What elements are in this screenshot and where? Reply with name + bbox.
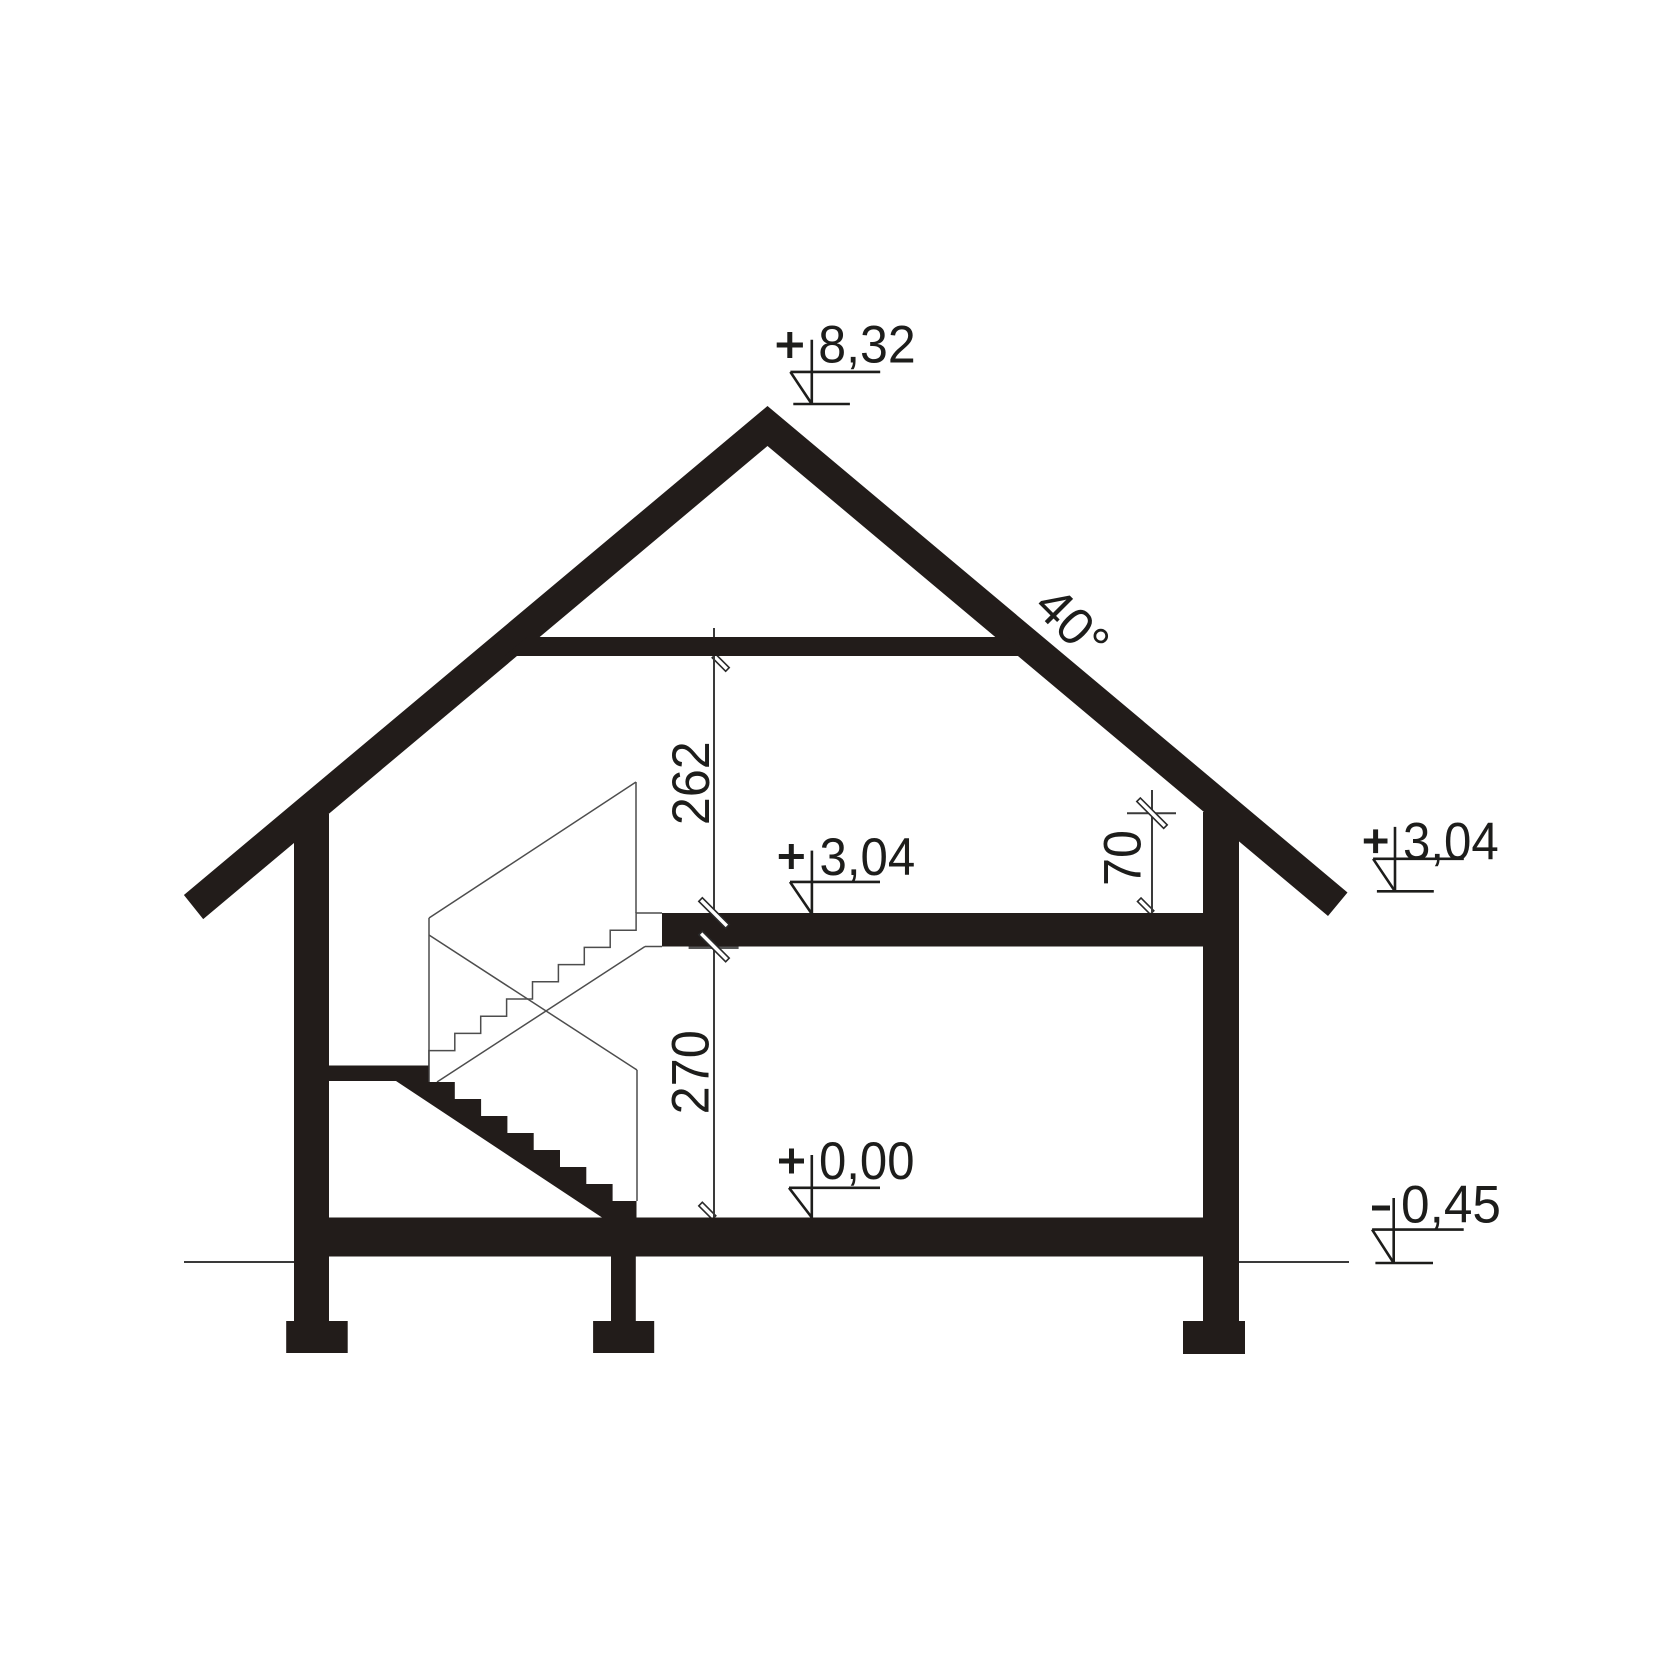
svg-text:8,32: 8,32 [818,315,915,374]
svg-text:3,04: 3,04 [1403,812,1499,871]
svg-text:262: 262 [662,741,721,825]
svg-text:0,00: 0,00 [819,1132,915,1191]
svg-text:3,04: 3,04 [820,828,916,887]
svg-text:270: 270 [661,1030,720,1114]
svg-text:0,45: 0,45 [1401,1175,1501,1234]
svg-text:70: 70 [1093,830,1152,886]
